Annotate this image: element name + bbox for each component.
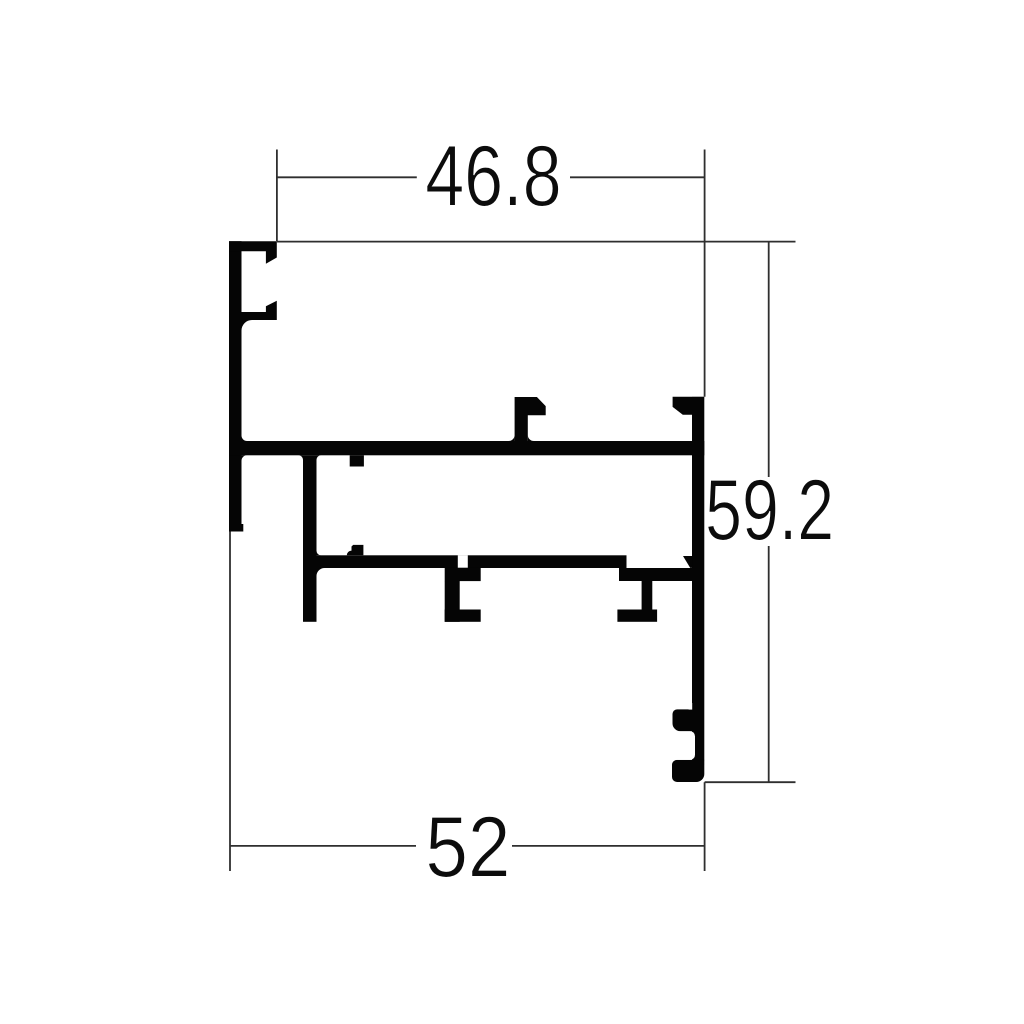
svg-text:59.2: 59.2 [705, 463, 834, 558]
svg-text:52: 52 [425, 799, 510, 895]
svg-text:46.8: 46.8 [425, 128, 561, 224]
